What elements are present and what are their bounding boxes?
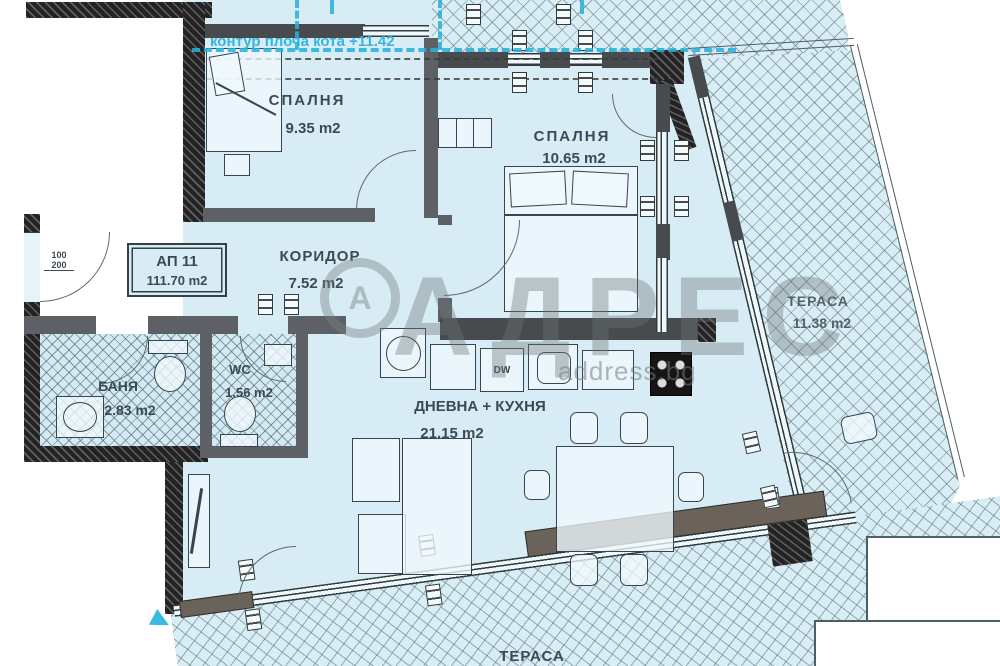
dimension-marker xyxy=(245,608,263,631)
floor-plan-canvas: DW 100 200 АП 11 111.70 m2 xyxy=(0,0,1000,666)
entrance-door-height: 200 xyxy=(44,260,74,270)
tv-cabinet xyxy=(188,474,210,568)
dresser-bedroom2 xyxy=(438,118,492,148)
room-area-wc: 1.56 m2 xyxy=(225,385,273,400)
bedroom2-terrace-window-a xyxy=(656,130,668,226)
column-terrace-junction xyxy=(767,519,812,566)
wall-bath-top-b xyxy=(148,316,238,334)
bathroom-toilet-tank xyxy=(148,340,188,354)
dimension-marker xyxy=(258,294,273,315)
sink-bowl xyxy=(63,402,97,432)
pillow-left-bedroom2 xyxy=(509,171,567,208)
slab-cyan-vline xyxy=(330,0,334,14)
terrace-step-2 xyxy=(814,620,1000,666)
sofa-cushion-bottom xyxy=(358,514,406,574)
wall-bedroom2-top-b xyxy=(540,52,570,68)
wall-bedroom2-top-a xyxy=(428,52,508,68)
dimension-marker xyxy=(674,196,689,217)
wall-bath-bottom xyxy=(24,446,208,462)
watermark-site: address.bg xyxy=(558,356,697,387)
room-label-bathroom: БАНЯ xyxy=(98,378,138,394)
wall-bath-top-a xyxy=(24,316,96,334)
room-area-bathroom: 2.83 m2 xyxy=(104,402,155,418)
dimension-marker xyxy=(512,72,527,93)
apartment-id-box: АП 11 111.70 m2 xyxy=(127,243,227,297)
room-label-wc: WC xyxy=(229,362,251,377)
room-label-bedroom1: СПАЛНЯ xyxy=(269,92,346,109)
dimension-marker xyxy=(425,584,443,607)
watermark-logo-letter: А xyxy=(348,280,371,316)
dimension-marker xyxy=(284,294,299,315)
exterior-top-left xyxy=(0,0,183,230)
bathroom-sink xyxy=(56,396,104,438)
exterior-bottom-left xyxy=(0,462,165,666)
wall-wc-right xyxy=(296,334,308,446)
dimension-marker xyxy=(556,4,571,25)
wall-partition-bedrooms xyxy=(424,38,438,218)
wall-bath-wc-divider xyxy=(200,334,212,446)
entrance-door-width: 100 xyxy=(44,250,74,260)
wall-wc-bottom xyxy=(200,446,308,458)
dimension-marker xyxy=(466,4,481,25)
entrance-opening xyxy=(24,232,40,304)
wall-top-left-vertical xyxy=(183,2,205,222)
pillow-right-bedroom2 xyxy=(571,171,629,208)
dining-chair xyxy=(620,554,648,586)
room-area-living: 21.15 m2 xyxy=(420,425,483,442)
dimension-marker xyxy=(674,140,689,161)
sofa-main xyxy=(402,438,472,575)
dining-chair xyxy=(524,470,550,500)
wall-living-left xyxy=(165,462,183,614)
wall-left-upper xyxy=(24,214,40,234)
dining-table xyxy=(556,446,674,552)
room-label-living: ДНЕВНА + КУХНЯ xyxy=(414,398,546,415)
slab-cyan-vline xyxy=(580,0,584,14)
slab-contour-note: контур плоча кота +11.42 xyxy=(210,33,395,50)
room-area-bedroom2: 10.65 m2 xyxy=(542,150,605,167)
dining-chair xyxy=(570,554,598,586)
watermark-logo: А xyxy=(320,258,400,338)
room-label-bedroom2: СПАЛНЯ xyxy=(534,128,611,145)
wc-toilet-tank xyxy=(220,434,258,447)
entrance-door-size: 100 200 xyxy=(44,250,74,271)
apartment-area: 111.70 m2 xyxy=(129,273,225,288)
room-area-bedroom1: 9.35 m2 xyxy=(285,120,340,137)
dining-chair xyxy=(678,472,704,502)
wall-bedroom1-corridor xyxy=(203,208,375,222)
dimension-marker xyxy=(640,140,655,161)
wall-right-seg-a xyxy=(656,84,670,132)
nightstand-bedroom1 xyxy=(224,154,250,176)
apartment-id: АП 11 xyxy=(129,253,225,270)
slab-cyan-vline xyxy=(438,0,442,50)
sofa-cushion-top xyxy=(352,438,400,502)
room-label-terrace-bottom: ТЕРАСА xyxy=(499,648,565,665)
dimension-marker xyxy=(578,72,593,93)
mattress-line-bedroom2 xyxy=(505,214,637,216)
dimension-marker xyxy=(640,196,655,217)
wc-toilet-bowl xyxy=(224,396,256,432)
bathroom-toilet-bowl xyxy=(154,356,186,392)
dining-chair xyxy=(570,412,598,444)
dining-chair xyxy=(620,412,648,444)
